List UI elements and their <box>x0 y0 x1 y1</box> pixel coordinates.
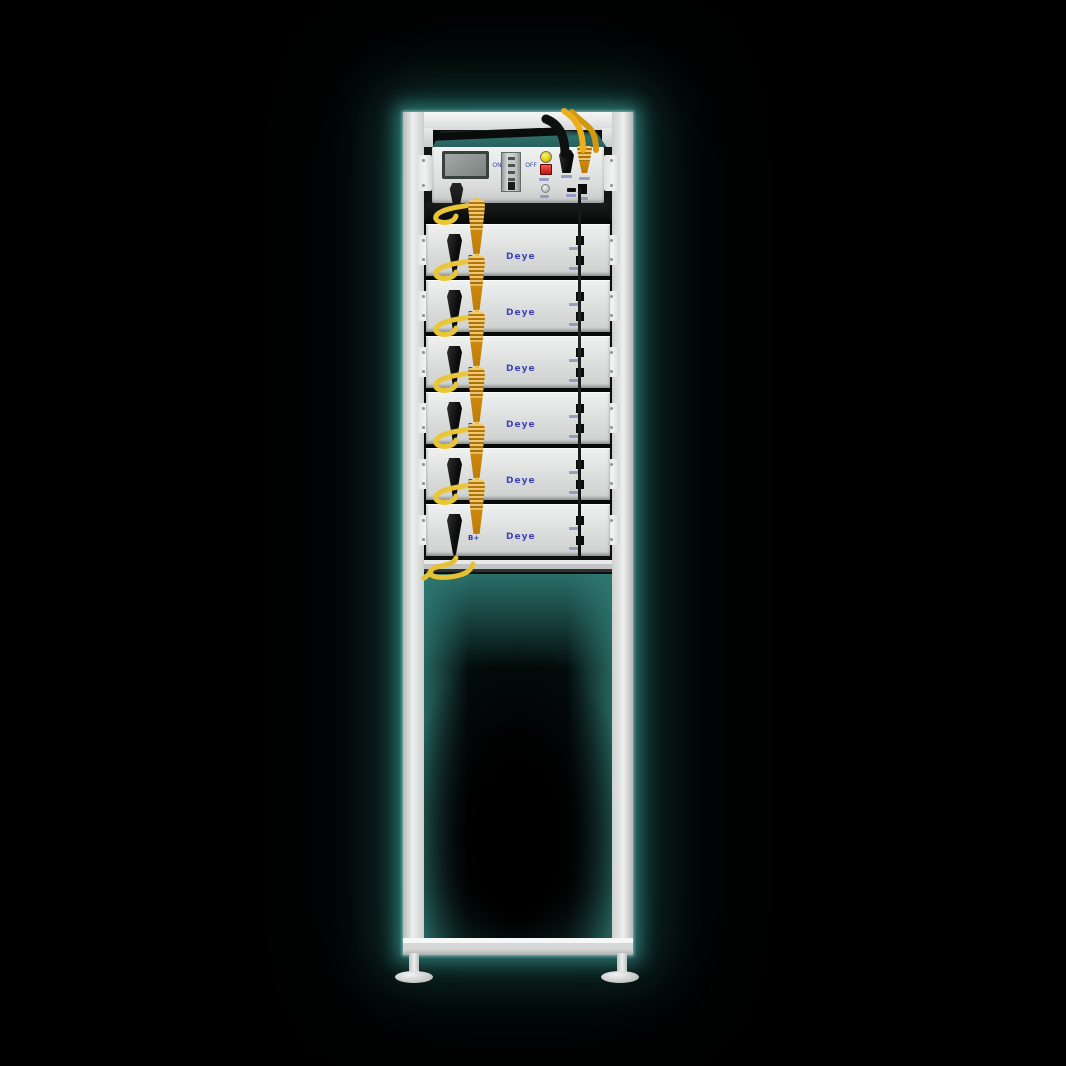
rack-bottom-bar <box>403 938 633 955</box>
yellow-cable-loop <box>430 306 500 340</box>
stop-button[interactable] <box>540 164 552 175</box>
module-brand-label: Deye <box>506 365 536 374</box>
foot-base-left <box>395 971 433 983</box>
yellow-cable-loop <box>430 418 500 452</box>
power-breaker-switch[interactable] <box>501 152 521 192</box>
battery-stack: ON OFF <box>424 130 612 560</box>
yellow-cable-loop <box>430 474 500 508</box>
module-brand-label: Deye <box>506 533 536 542</box>
module-brand-label: Deye <box>506 421 536 430</box>
breaker-lever[interactable] <box>508 182 515 190</box>
yellow-cable-loop <box>430 250 500 284</box>
control-top-wall-left <box>424 128 433 149</box>
module-brand-label: Deye <box>506 477 536 486</box>
breaker-terminals <box>508 157 515 184</box>
module-brand-label: Deye <box>506 253 536 262</box>
module-terminal-label: B+ <box>468 535 479 542</box>
empty-rack-bay <box>424 574 612 938</box>
switch-off-label: OFF <box>523 163 539 169</box>
comm-port-flat-icon <box>567 188 576 192</box>
module-brand-label: Deye <box>506 309 536 318</box>
micro-label <box>539 178 549 181</box>
micro-label <box>540 195 549 198</box>
yellow-cable-loop <box>430 194 500 228</box>
micro-label <box>561 175 572 178</box>
lcd-screen <box>442 151 489 179</box>
top-power-cables <box>545 110 617 154</box>
bottom-cable-loop <box>424 548 496 584</box>
mount-ear <box>416 155 432 191</box>
yellow-cable-loop <box>430 362 500 396</box>
mount-ear <box>604 155 620 191</box>
micro-label <box>566 194 576 197</box>
foot-base-right <box>601 971 639 983</box>
reset-button[interactable] <box>541 184 550 193</box>
micro-label <box>579 177 590 180</box>
product-photo-scene: ON OFF <box>0 0 1066 1066</box>
comm-daisy-chain-cable <box>578 188 581 556</box>
